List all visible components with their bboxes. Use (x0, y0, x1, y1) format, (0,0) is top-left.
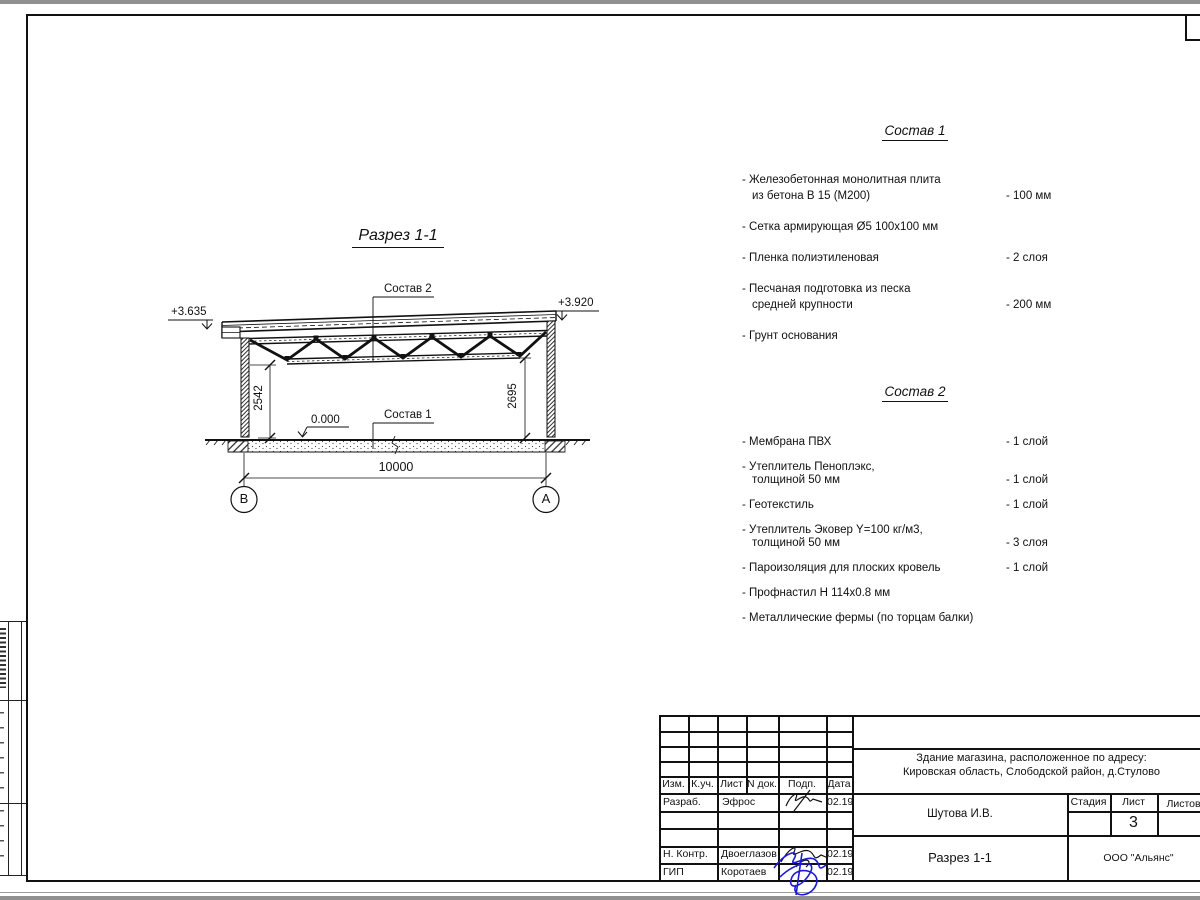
signature-developer (782, 789, 830, 813)
sheets-label: Листов (1157, 795, 1200, 813)
composition-item-text: средней крупности (742, 297, 1182, 313)
composition-item: - Утеплитель Эковер Y=100 кг/м3,толщиной… (742, 524, 1182, 550)
sig-name-gip: Коротаев (721, 863, 766, 881)
composition-item-text: толщиной 50 мм (742, 474, 1182, 487)
composition-item-text: - Грунт основания (742, 328, 1182, 344)
titleblock-line (659, 715, 1200, 717)
rev-col-list: Лист (717, 776, 746, 793)
axis-letter-left: В (231, 491, 257, 506)
roof-leader (373, 297, 434, 361)
side-stamp-line (0, 621, 26, 622)
sig-role-normcontrol: Н. Контр. (663, 846, 708, 863)
composition-item: - Пароизоляция для плоских кровель- 1 сл… (742, 562, 1182, 575)
side-stamp-text (0, 628, 6, 688)
roof-deck (222, 311, 556, 338)
project-description-line2: Кировская область, Слободской район, д.С… (853, 765, 1200, 779)
composition-item: - Железобетонная монолитная плитаиз бето… (742, 172, 1182, 204)
composition-item-value: - 100 мм (1006, 188, 1051, 204)
sig-date-developer: 02.19 (827, 793, 852, 811)
composition-item-text: - Профнастил Н 114х0.8 мм (742, 587, 1182, 600)
side-stamp-line (0, 803, 26, 804)
composition-item: - Песчаная подготовка из пескасредней кр… (742, 281, 1182, 313)
floor-composition-label: Состав 1 (384, 409, 432, 421)
composition-item-text: - Мембрана ПВХ (742, 436, 1182, 449)
corner-stamp-box-bottom (1185, 39, 1200, 41)
composition-item: - Мембрана ПВХ- 1 слой (742, 436, 1182, 449)
composition-item: - Утеплитель Пеноплэкс,толщиной 50 мм- 1… (742, 461, 1182, 487)
axis-letter-right: А (533, 491, 559, 506)
sheet-label: Лист (1110, 793, 1157, 811)
composition-item: - Профнастил Н 114х0.8 мм (742, 587, 1182, 600)
composition-item-text: из бетона В 15 (М200) (742, 188, 1182, 204)
wall-right (547, 321, 555, 437)
composition-item-text: - Сетка армирующая Ø5 100х100 мм (742, 219, 1182, 235)
project-description-line1: Здание магазина, расположенное по адресу… (853, 751, 1200, 765)
zero-level-mark (298, 427, 349, 437)
composition-item-text: - Пароизоляция для плоских кровель (742, 562, 1182, 575)
truss-top-chord (249, 331, 547, 345)
titleblock-doc-title: Разрез 1-1 (853, 835, 1067, 881)
sheet-number: 3 (1110, 811, 1157, 835)
titleblock-line (717, 715, 719, 882)
composition-item-value: - 2 слоя (1006, 250, 1048, 266)
window-top-strip (0, 0, 1200, 4)
span-dimension: 10000 (367, 460, 425, 474)
zero-level-value: 0.000 (311, 414, 340, 426)
floor-slab (205, 436, 590, 454)
signature-gip (766, 843, 844, 898)
company-name: ООО "Альянс" (1067, 835, 1200, 881)
section-title: Разрез 1-1 (352, 227, 444, 248)
composition2-list: - Мембрана ПВХ- 1 слой- Утеплитель Пеноп… (742, 436, 1182, 637)
composition-item-text: - Пленка полиэтиленовая (742, 250, 1182, 266)
composition-item-text: - Металлические фермы (по торцам балки) (742, 612, 1182, 625)
height-dimension-left: 2542 (253, 381, 265, 415)
section-drawing (160, 275, 620, 525)
window-bottom-strip (0, 896, 1200, 900)
sig-name-developer: Эфрос (722, 793, 755, 811)
composition2-header: Состав 2 (742, 383, 1088, 401)
side-stamp-text (0, 810, 4, 865)
titleblock-line (659, 715, 661, 882)
sig-role-developer: Разраб. (663, 793, 701, 811)
rev-col-ndok: N док. (746, 776, 778, 793)
wall-left (241, 338, 249, 437)
composition-item-text: толщиной 50 мм (742, 537, 1182, 550)
side-stamp-line (8, 621, 9, 876)
elevation-left-value: +3.635 (171, 306, 207, 318)
rev-col-izm: Изм. (659, 776, 688, 793)
composition-item: - Грунт основания (742, 328, 1182, 344)
composition-item: - Геотекстиль- 1 слой (742, 499, 1182, 512)
composition1-header: Состав 1 (742, 122, 1088, 140)
composition-item: - Пленка полиэтиленовая- 2 слоя (742, 250, 1182, 266)
composition-item-text: - Утеплитель Пеноплэкс, (742, 461, 1182, 474)
author-name: Шутова И.В. (853, 793, 1067, 835)
project-description: Здание магазина, расположенное по адресу… (853, 751, 1200, 779)
composition-item-text: - Геотекстиль (742, 499, 1182, 512)
titleblock-line (852, 748, 1200, 750)
composition-item-value: - 1 слой (1006, 562, 1048, 575)
composition-item: - Сетка армирующая Ø5 100х100 мм (742, 219, 1182, 235)
roof-composition-label: Состав 2 (384, 283, 432, 295)
composition-item-value: - 200 мм (1006, 297, 1051, 313)
frame-line-left (26, 14, 28, 882)
composition-item-value: - 1 слой (1006, 474, 1048, 487)
composition-item-text: - Песчаная подготовка из песка (742, 281, 1182, 297)
height-dimension-right: 2695 (507, 379, 519, 413)
composition-item-text: - Утеплитель Эковер Y=100 кг/м3, (742, 524, 1182, 537)
titleblock-line (659, 828, 854, 830)
elevation-right-value: +3.920 (558, 297, 594, 309)
side-stamp-line (0, 700, 26, 701)
frame-line-top (26, 14, 1200, 16)
stage-label: Стадия (1067, 793, 1110, 811)
window-bottom-line (0, 892, 1200, 893)
composition-item-value: - 1 слой (1006, 436, 1048, 449)
side-stamp-line (0, 875, 26, 876)
composition-item-value: - 3 слоя (1006, 537, 1048, 550)
composition1-list: - Железобетонная монолитная плитаиз бето… (742, 172, 1182, 359)
drawing-sheet: { "drawing": { "title": "Разрез 1-1", "e… (0, 0, 1200, 900)
composition-item-value: - 1 слой (1006, 499, 1048, 512)
rev-col-kuch: К.уч. (688, 776, 717, 793)
composition2-title: Состав 2 (882, 384, 949, 402)
corner-stamp-box-left (1185, 14, 1187, 41)
composition-item: - Металлические фермы (по торцам балки) (742, 612, 1182, 625)
sig-role-gip: ГИП (663, 863, 684, 881)
composition1-title: Состав 1 (882, 123, 949, 141)
truss-diagonals (250, 332, 546, 360)
side-stamp-line (21, 621, 22, 876)
composition-item-text: - Железобетонная монолитная плита (742, 172, 1182, 188)
side-stamp-text (0, 712, 4, 794)
elevation-mark-right (556, 311, 599, 320)
elevation-mark-left (168, 320, 213, 329)
